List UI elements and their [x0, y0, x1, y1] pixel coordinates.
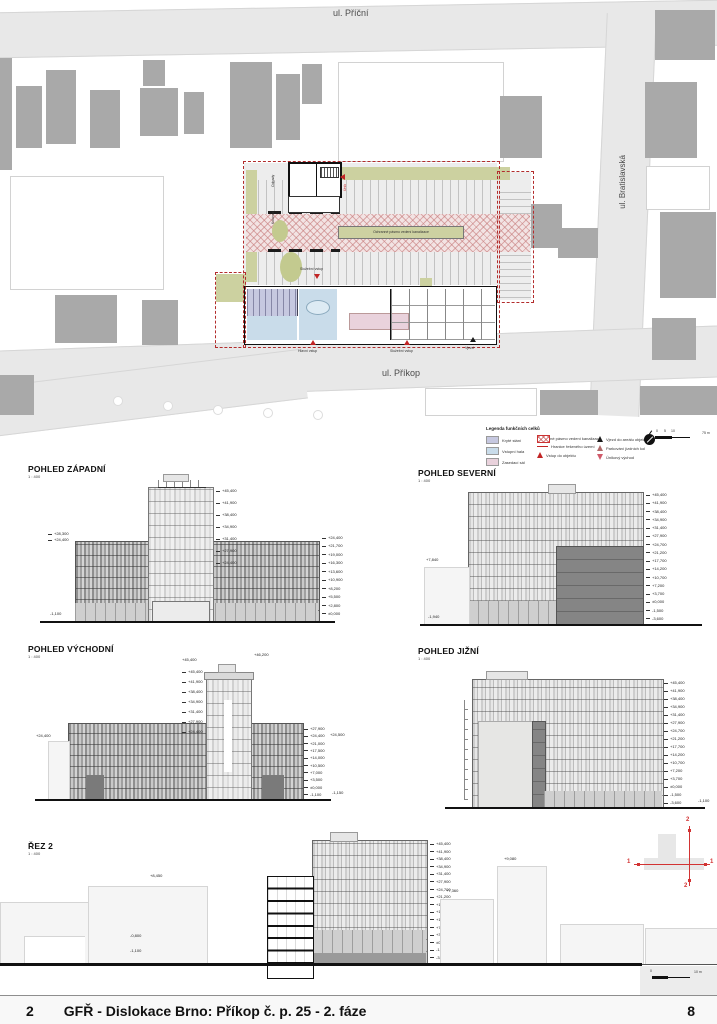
city-block	[302, 64, 322, 104]
east-dark-entry	[262, 775, 284, 799]
level-label: +5,500	[322, 595, 343, 599]
scalebar-tick-0: 0	[656, 430, 658, 434]
city-block	[500, 96, 542, 158]
keyplan-marker	[637, 863, 640, 866]
east-left-level: +24,400	[36, 734, 51, 738]
scalebar-tick-10: 10	[671, 430, 675, 434]
city-block	[276, 74, 300, 140]
level-label: +34,900	[646, 518, 667, 522]
level-label: +45,400	[216, 489, 237, 493]
north-right-levels: +45,400+41,900+38,400+34,900+31,400+27,9…	[646, 493, 667, 621]
keyplan-label-2-bottom: 2	[684, 883, 687, 889]
level-label: -3,600	[646, 617, 667, 621]
section-cut-part	[267, 876, 314, 965]
keyplan-marker	[688, 879, 691, 882]
elevation-east: POHLED VÝCHODNÍ 1 : 400 +45,400 +46,200 …	[0, 635, 360, 810]
keyplan-marker	[704, 863, 707, 866]
legend-item: Kryté stání	[486, 436, 525, 444]
level-label: +8,200	[322, 587, 343, 591]
drawing-sheet: ul. Příční ul. Bratislavská ul. Příkop	[0, 0, 717, 1024]
level-label: +34,900	[216, 525, 237, 529]
keyplan-section-line-1	[634, 864, 710, 865]
title-block: 2 GFŘ - Dislokace Brno: Příkop č. p. 25 …	[0, 995, 717, 1024]
level-label: +45,400	[646, 493, 667, 497]
level-label: +27,900	[646, 534, 667, 538]
level-label: +34,900	[664, 705, 685, 709]
west-left-levels: +28,300+24,400	[48, 532, 69, 542]
legend-item-label: Parkování jízdních kol	[606, 446, 645, 451]
level-label: +38,400	[430, 857, 451, 861]
tree-circle	[163, 401, 173, 411]
level-label: +27,900	[664, 721, 685, 725]
city-block	[46, 70, 76, 144]
level-label: +41,900	[646, 501, 667, 505]
tree-circle	[313, 410, 323, 420]
level-label: +10,700	[646, 576, 667, 580]
color-swatch-icon	[486, 436, 499, 444]
level-label: +34,900	[182, 700, 203, 704]
north-dark-block	[556, 546, 644, 626]
legend-item: Ochranné pásmo vedení kanalizace	[537, 436, 601, 441]
level-label: +17,500	[304, 749, 325, 753]
legend-item-label: Vjezd do areálu objektu	[606, 437, 648, 442]
level-label: +38,400	[216, 513, 237, 517]
site-boundary	[243, 161, 500, 348]
level-label: +17,700	[664, 745, 685, 749]
level-label: +27,900	[216, 549, 237, 553]
section-ground-dark	[312, 953, 426, 963]
section-n2-level: +9,080	[504, 857, 516, 861]
section-scale: 1 : 400	[28, 851, 40, 856]
site-boundary-west-notch	[215, 272, 246, 348]
level-label: +31,400	[182, 710, 203, 714]
east-right2-top-level: +24,500	[330, 733, 345, 737]
level-label: +10,700	[664, 761, 685, 765]
site-boundary-east	[497, 171, 534, 303]
level-label: +21,000	[304, 742, 325, 746]
level-label: +24,400	[216, 561, 237, 565]
east-tower-levels: +45,400+41,900+38,400+34,900+31,400+27,9…	[182, 670, 203, 734]
scalebar-tick-5: 5	[664, 430, 666, 434]
section-neighbor-right1	[440, 899, 494, 965]
east-rooftop-unit	[218, 664, 236, 673]
street-label-prikop: ul. Příkop	[382, 368, 420, 378]
scalebar	[655, 436, 672, 439]
legend-item-label: Kryté stání	[502, 438, 521, 443]
east-top-right-level: +46,200	[254, 653, 269, 657]
south-right-levels: +45,400+41,900+38,400+34,900+31,400+27,9…	[664, 681, 685, 805]
city-block	[558, 228, 598, 258]
city-block	[140, 88, 178, 136]
level-label: +19,000	[322, 553, 343, 557]
elevation-west-scale: 1 : 400	[28, 474, 40, 479]
legend-item-label: Hranice řešeného území	[551, 444, 595, 449]
city-block	[0, 375, 34, 415]
level-label: +24,400	[48, 538, 69, 542]
color-swatch-icon	[486, 447, 499, 455]
level-label: +45,400	[430, 842, 451, 846]
vehicle-entry-label: Vjezd	[465, 347, 474, 351]
tree-circle	[263, 408, 273, 418]
level-label: ±0,000	[322, 612, 343, 616]
east-dark-entry	[86, 775, 104, 799]
elevation-west: POHLED ZÁPADNÍ 1 : 400 +45,400+41,900+38…	[0, 455, 360, 630]
section-basement	[267, 964, 314, 979]
level-label: +7,000	[304, 771, 325, 775]
level-label: +3,700	[646, 592, 667, 596]
level-label: +34,900	[430, 865, 451, 869]
legend-item: Vstupní hala	[486, 447, 525, 455]
section-ground-line-thin	[642, 964, 717, 965]
level-label: +14,200	[664, 753, 685, 757]
section-left-mid-level: -0,800	[130, 934, 141, 938]
street-label-bratislavska: ul. Bratislavská	[618, 155, 627, 209]
sheet-phase-number: 2	[26, 1003, 34, 1019]
level-label: +14,000	[304, 756, 325, 760]
keyplan-stem	[658, 834, 676, 858]
city-block	[645, 82, 697, 158]
main-entrance-label: Hlavní vstup	[298, 350, 317, 354]
city-block	[540, 390, 598, 415]
city-block	[655, 10, 715, 60]
level-label: +10,500	[304, 764, 325, 768]
section-neighbor-right2	[497, 866, 547, 965]
south-light-block	[478, 721, 534, 809]
east-top-left-level: +45,400	[182, 658, 197, 662]
elevation-east-title: POHLED VÝCHODNÍ	[28, 644, 114, 654]
level-label: +38,400	[646, 510, 667, 514]
section-scalebar-0: 0	[650, 970, 652, 974]
elevation-south-title: POHLED JIŽNÍ	[418, 646, 479, 656]
section-left-top-level: +8,450	[150, 874, 162, 878]
section-left-bottom-level: -1,100	[130, 949, 141, 953]
section-neighbor-left-notch	[24, 936, 85, 964]
service-entrance-arrow-icon	[404, 340, 410, 345]
level-label: +16,300	[322, 561, 343, 565]
east-left-wall	[48, 741, 70, 801]
level-label: +21,200	[664, 737, 685, 741]
level-label: +27,900	[182, 720, 203, 724]
site-plan: ul. Příční ul. Bratislavská ul. Příkop	[0, 0, 717, 416]
street-label-pricni: ul. Příční	[333, 8, 369, 18]
level-label: +21,200	[646, 551, 667, 555]
level-label: +7,200	[646, 584, 667, 588]
north-arrow-icon	[644, 434, 655, 445]
sheet-title: GFŘ - Dislokace Brno: Příkop č. p. 25 - …	[64, 1003, 687, 1019]
section-neighbor-right3	[560, 924, 644, 965]
keyplan-marker	[688, 829, 691, 832]
section-rooftop-unit	[330, 832, 358, 842]
section-scalebar	[652, 976, 668, 979]
section-scalebar-line	[668, 977, 690, 978]
section-title: ŘEZ 2	[28, 841, 53, 851]
level-label: +13,600	[322, 570, 343, 574]
level-label: +7,200	[664, 769, 685, 773]
sheet-number: 8	[687, 1003, 695, 1019]
level-label: +24,400	[182, 730, 203, 734]
north-left-top-level: +7,840	[426, 558, 438, 562]
elevation-north-scale: 1 : 400	[418, 478, 430, 483]
legend-item: Hranice řešeného území	[537, 444, 601, 449]
level-label: +3,700	[664, 777, 685, 781]
level-label: +38,400	[182, 690, 203, 694]
level-label: -1,100	[304, 793, 325, 797]
west-rooftop-unit	[163, 474, 189, 482]
south-bottom-right-level: -1,100	[698, 799, 709, 803]
section-neighbor-right4	[645, 928, 717, 965]
keyplan-section-line-2	[689, 826, 690, 886]
keyplan-label-1-left: 1	[627, 859, 630, 865]
north-ground-floor	[468, 601, 556, 624]
keyplan-label-1-right: 1	[710, 859, 713, 865]
city-block	[16, 86, 42, 148]
section-rez2: ŘEZ 2 1 : 400 +8,450 -0,800 -1,100 +45,4…	[0, 815, 717, 995]
level-label: +24,400	[304, 734, 325, 738]
east-right2-bottom-level: -1,150	[332, 791, 343, 795]
city-block	[660, 212, 716, 298]
keyplan-label-2-top: 2	[686, 817, 689, 823]
north-left-bottom-level: -1,940	[428, 615, 439, 619]
scalebar-line	[672, 437, 690, 438]
south-rooftop-unit	[486, 671, 528, 680]
elevation-north-title: POHLED SEVERNÍ	[418, 468, 496, 478]
elevation-south: POHLED JIŽNÍ 1 : 400 +45,400+41,900+38,4…	[395, 635, 717, 815]
city-block	[640, 386, 717, 415]
city-block	[142, 300, 178, 345]
level-label: +21,700	[322, 544, 343, 548]
level-label: +24,700	[646, 543, 667, 547]
south-ground-line	[445, 807, 705, 809]
level-label: +27,900	[430, 880, 451, 884]
city-block	[55, 295, 117, 343]
south-left-ruler	[464, 700, 468, 800]
line-swatch-icon	[537, 446, 548, 447]
elevation-west-title: POHLED ZÁPADNÍ	[28, 464, 106, 474]
level-label: -3,600	[664, 801, 685, 805]
east-tower-slot	[224, 700, 232, 772]
level-label: +27,900	[304, 727, 325, 731]
level-label: +28,300	[48, 532, 69, 536]
level-label: -1,500	[646, 609, 667, 613]
scalebar-end-label: 75 m	[702, 432, 710, 436]
level-label: +41,900	[664, 689, 685, 693]
level-label: +31,400	[664, 713, 685, 717]
legend-title: Legenda funkčních celků	[486, 426, 540, 431]
section-ground-line	[0, 963, 642, 966]
west-ground-line	[40, 621, 335, 623]
west-left-bottom-level: -1,100	[50, 612, 61, 616]
city-block	[184, 92, 204, 134]
tri-gray-swatch-icon	[597, 445, 603, 451]
tree-circle	[113, 396, 123, 406]
legend-item-label: Vstupní hala	[502, 449, 524, 454]
legend-item: Vjezd do areálu objektu	[597, 436, 648, 442]
level-label: +41,900	[182, 680, 203, 684]
elevation-east-scale: 1 : 400	[28, 654, 40, 659]
west-right-levels: +24,400+21,700+19,000+16,300+13,600+10,9…	[322, 536, 343, 616]
elevation-north: POHLED SEVERNÍ 1 : 400 +7,840 -1,940 +45…	[395, 455, 717, 630]
level-label: +10,900	[322, 578, 343, 582]
level-label: +45,400	[664, 681, 685, 685]
level-label: ±0,000	[646, 600, 667, 604]
level-label: +41,900	[430, 850, 451, 854]
level-label: +14,200	[646, 567, 667, 571]
city-block	[143, 60, 165, 86]
level-label: +31,400	[646, 526, 667, 530]
level-label: +38,400	[664, 697, 685, 701]
level-label: +24,400	[322, 536, 343, 540]
level-label: -1,500	[664, 793, 685, 797]
legend-item: Parkování jízdních kol	[597, 445, 648, 451]
city-block	[652, 318, 696, 360]
section-n1-level: +7,360	[446, 889, 458, 893]
level-label: +31,400	[216, 537, 237, 541]
level-label: +17,700	[646, 559, 667, 563]
level-label: +2,800	[322, 604, 343, 608]
level-label: +31,400	[430, 872, 451, 876]
level-label: +24,700	[664, 729, 685, 733]
section-neighbor-left2	[88, 886, 208, 965]
tree-circle	[213, 405, 223, 415]
north-ground-line	[420, 624, 702, 626]
parcel	[425, 388, 537, 416]
city-block	[230, 62, 272, 148]
elevation-south-scale: 1 : 400	[418, 656, 430, 661]
level-label: ±0,000	[664, 785, 685, 789]
east-tower-roof	[204, 672, 254, 680]
city-block	[90, 90, 120, 148]
parcel	[10, 176, 164, 290]
vehicle-entry-arrow-icon	[470, 337, 476, 342]
north-rooftop-unit	[548, 484, 576, 494]
hatch-swatch-icon	[537, 435, 550, 443]
level-label: +3,500	[304, 778, 325, 782]
tri-black-swatch-icon	[597, 436, 603, 442]
main-entrance-arrow-icon	[310, 340, 316, 345]
level-label: ±0,000	[304, 786, 325, 790]
level-label: +45,400	[182, 670, 203, 674]
parcel	[338, 62, 504, 162]
parcel	[646, 166, 710, 210]
service-entrance-label: Služební vstup	[390, 350, 413, 354]
west-entrance	[152, 601, 210, 623]
east-ground-line	[35, 799, 331, 801]
south-ground-floor	[544, 791, 662, 807]
level-label: +41,900	[216, 501, 237, 505]
city-block	[0, 58, 12, 170]
section-scalebar-end: 10 m	[694, 971, 702, 975]
west-tower-levels: +45,400+41,900+38,400+34,900+31,400+27,9…	[216, 489, 237, 565]
east-right-levels: +27,900+24,400+21,000+17,500+14,000+10,5…	[304, 727, 325, 797]
